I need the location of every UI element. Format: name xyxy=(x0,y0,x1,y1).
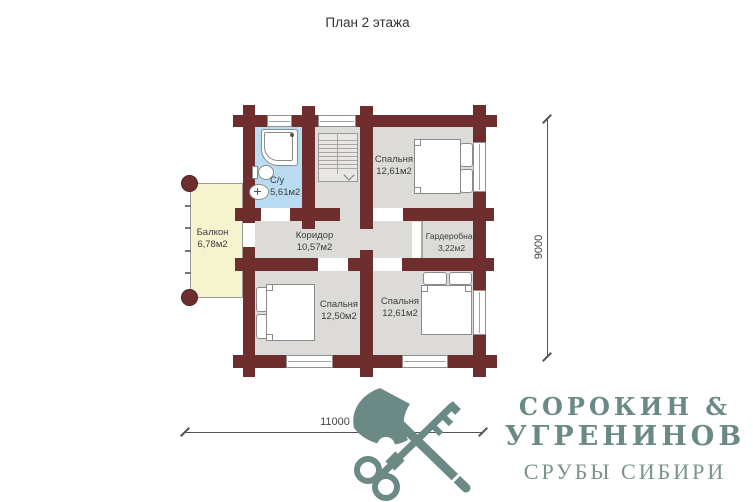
crossed-axe-and-key-icon xyxy=(346,384,482,502)
room-label-wardrobe: Гардеробная 3,22м2 xyxy=(414,231,489,254)
bed-fold-mark xyxy=(266,334,273,341)
room-name: Гардеробная xyxy=(414,231,489,243)
log-end xyxy=(302,106,315,115)
logo-company-name-line1: СОРОКИН & xyxy=(502,392,748,421)
bed-fold-mark xyxy=(414,187,421,194)
stair-opening-floor xyxy=(340,208,360,221)
room-area: 6,78м2 xyxy=(185,239,240,251)
bed-fold-mark xyxy=(266,284,273,291)
pillow xyxy=(449,272,472,285)
room-label-corridor: Коридор 10,57м2 xyxy=(282,230,347,253)
window-right-1 xyxy=(473,142,486,192)
log-end xyxy=(360,106,373,115)
log-end xyxy=(486,208,494,221)
interior-wall-b xyxy=(402,258,486,271)
room-area: 10,57м2 xyxy=(282,242,347,254)
bed-fold-mark xyxy=(421,285,428,292)
log-end xyxy=(302,221,315,229)
room-area: 5,61м2 xyxy=(270,187,315,199)
balcony-railing-tick xyxy=(185,205,191,207)
room-area: 3,22м2 xyxy=(414,243,489,255)
stair-treads xyxy=(319,137,357,171)
window-bottom-2 xyxy=(402,355,448,368)
bed-fold-mark xyxy=(414,139,421,146)
dimension-line-vertical xyxy=(547,119,548,357)
balcony-door-opening xyxy=(243,223,255,247)
balcony-post xyxy=(181,175,198,192)
room-name: Спальня xyxy=(305,299,373,311)
room-name: Балкон xyxy=(185,227,240,239)
room-name: Спальня xyxy=(366,296,434,308)
log-end xyxy=(235,208,243,221)
sink-faucet-icon xyxy=(257,188,258,195)
dimension-value-vertical: 9000 xyxy=(533,226,547,268)
pillow xyxy=(423,272,447,285)
balcony-railing-tick xyxy=(185,250,191,252)
log-end xyxy=(360,221,373,229)
window-top-2 xyxy=(318,115,356,127)
room-name: Спальня xyxy=(358,154,430,166)
page-title: План 2 этажа xyxy=(255,15,480,30)
room-label-bedroom-bottom-left: Спальня 12,50м2 xyxy=(305,299,373,322)
shower-tray xyxy=(264,132,293,161)
bathroom-divider-wall xyxy=(302,115,315,221)
stair-center-divider xyxy=(337,134,338,174)
log-end xyxy=(486,258,494,271)
room-name: Коридор xyxy=(282,230,347,242)
interior-wall-b xyxy=(348,258,360,271)
log-end xyxy=(235,258,243,271)
logo-tagline: СРУБЫ СИБИРИ xyxy=(502,459,748,485)
interior-wall-a xyxy=(243,208,261,221)
interior-wall-a xyxy=(290,208,340,221)
room-label-balcony: Балкон 6,78м2 xyxy=(185,227,240,250)
balcony-railing-tick xyxy=(185,272,191,274)
floor-plan-page: План 2 этажа xyxy=(0,0,753,502)
interior-wall-b xyxy=(243,258,318,271)
room-label-bathroom: С/у 5,61м2 xyxy=(270,175,315,198)
window-right-2 xyxy=(473,290,486,335)
interior-wall-a xyxy=(403,208,486,221)
pillow xyxy=(460,143,473,167)
room-area: 12,61м2 xyxy=(366,308,434,320)
room-label-bedroom-top: Спальня 12,61м2 xyxy=(358,154,430,177)
window-top-1 xyxy=(267,115,292,127)
room-area: 12,50м2 xyxy=(305,311,373,323)
log-end xyxy=(360,250,373,258)
pillow xyxy=(460,169,473,193)
balcony-post xyxy=(181,289,198,306)
room-label-bedroom-bottom-right: Спальня 12,61м2 xyxy=(366,296,434,319)
bed-fold-mark xyxy=(465,285,472,292)
room-name: С/у xyxy=(270,175,315,187)
window-bottom-1 xyxy=(286,355,333,368)
logo-company-name-line2: УГРЕНИНОВ xyxy=(502,421,748,452)
room-area: 12,61м2 xyxy=(358,166,430,178)
shower-head-icon xyxy=(290,133,294,137)
sink xyxy=(249,184,269,200)
log-end xyxy=(360,368,373,377)
